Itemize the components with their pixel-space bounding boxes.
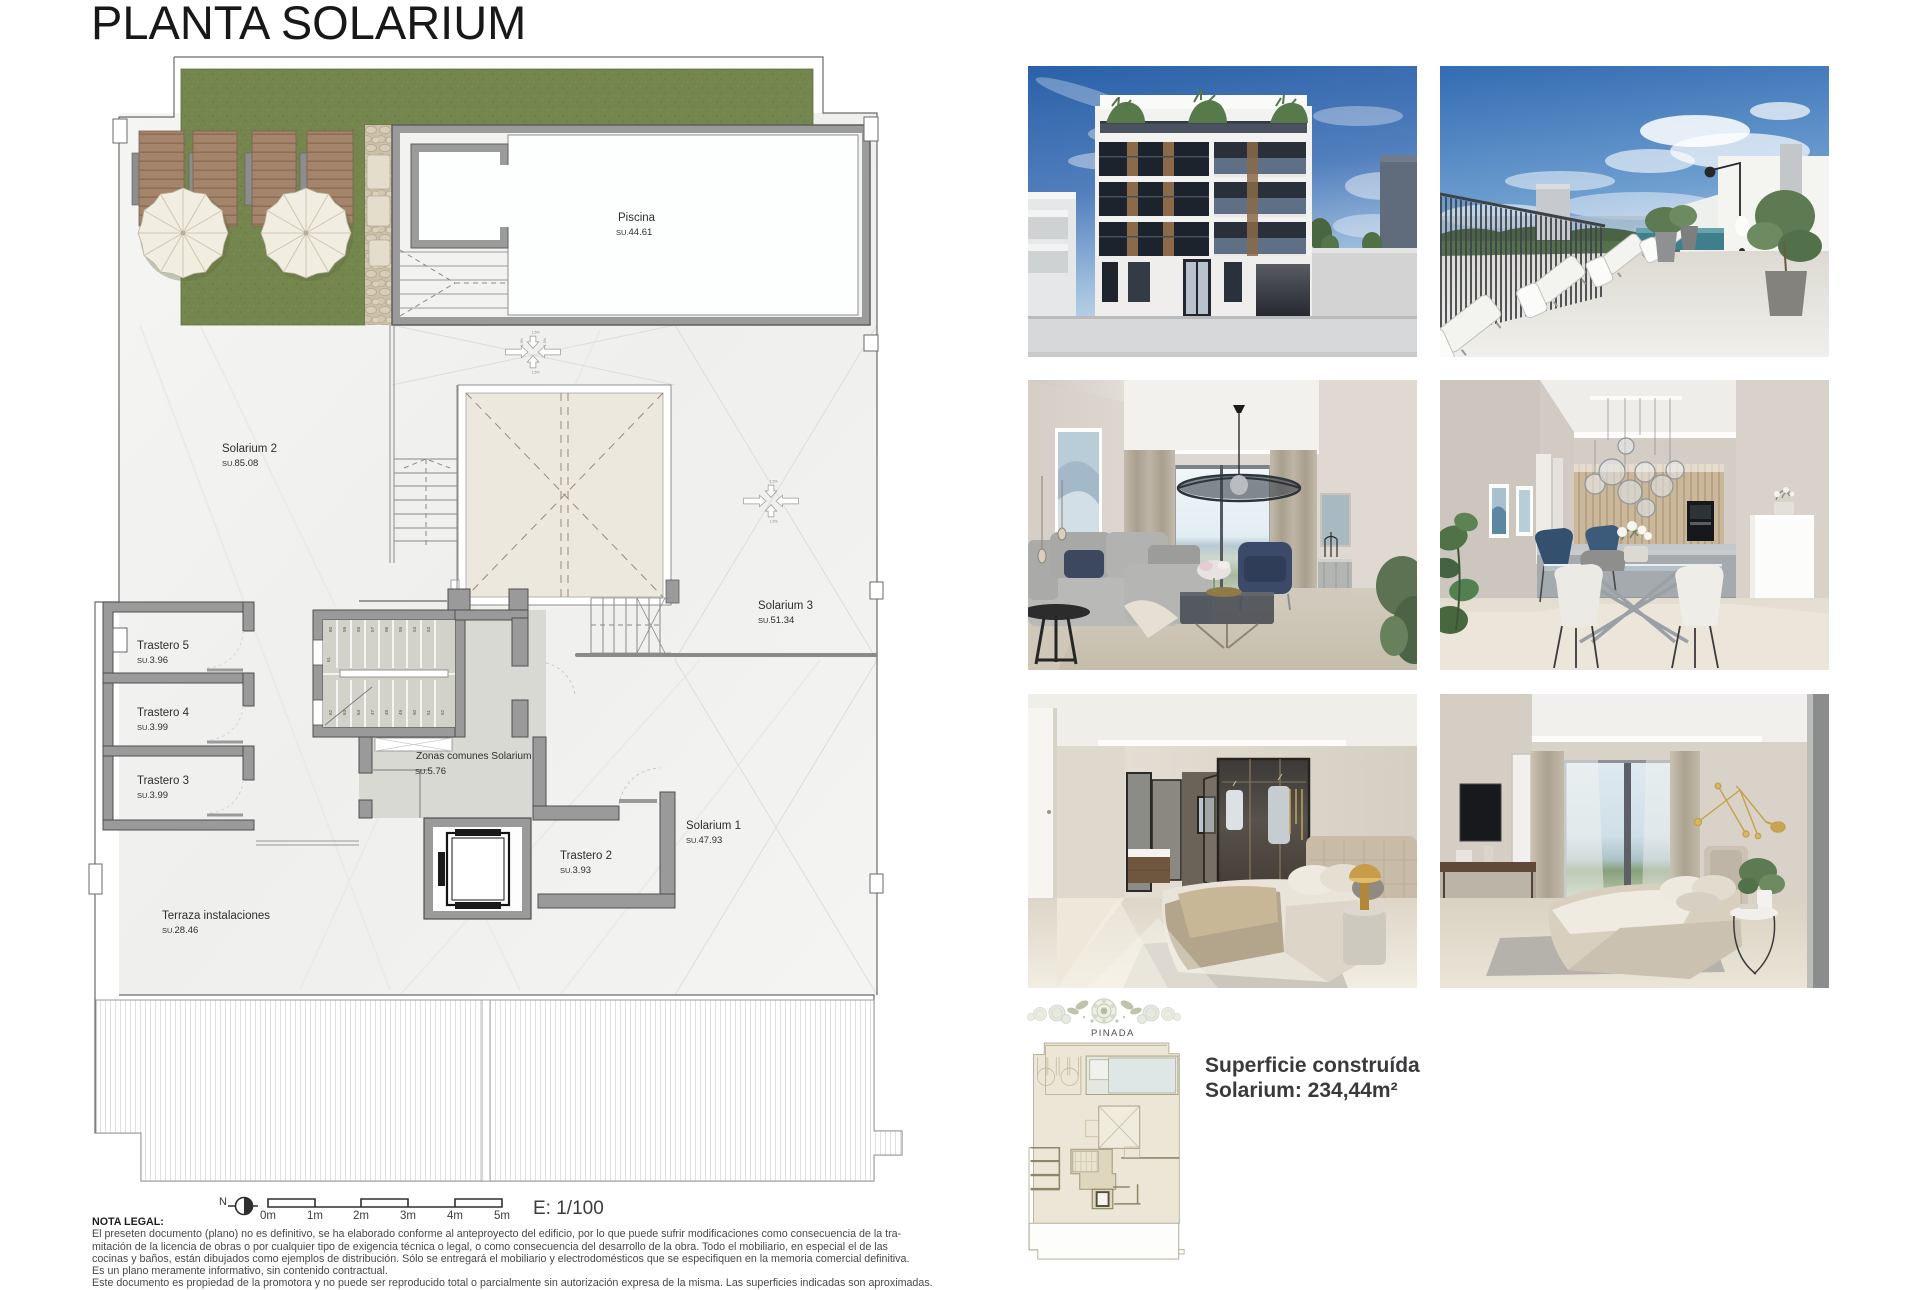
svg-text:62: 62 (328, 709, 333, 715)
svg-text:Solarium 3: Solarium 3 (758, 600, 813, 612)
svg-text:SU.28.46: SU.28.46 (162, 925, 198, 936)
svg-text:Piscina: Piscina (618, 212, 656, 224)
svg-text:59: 59 (342, 626, 347, 632)
svg-text:Trastero 5: Trastero 5 (137, 640, 189, 652)
svg-text:SU.44.61: SU.44.61 (616, 227, 652, 238)
svg-text:50: 50 (412, 709, 417, 715)
svg-text:56: 56 (384, 626, 389, 632)
svg-text:SU.85.08: SU.85.08 (222, 458, 258, 469)
svg-text:49: 49 (398, 709, 403, 715)
svg-text:57: 57 (370, 626, 375, 632)
svg-text:47: 47 (370, 709, 375, 715)
svg-text:63: 63 (342, 709, 347, 715)
svg-text:48: 48 (384, 709, 389, 715)
svg-text:58: 58 (356, 626, 361, 632)
svg-text:Trastero 3: Trastero 3 (137, 775, 189, 787)
svg-text:SU.47.93: SU.47.93 (686, 835, 722, 846)
svg-text:1.5%: 1.5% (532, 371, 541, 375)
svg-text:60: 60 (328, 626, 333, 632)
svg-text:61: 61 (326, 656, 331, 662)
svg-text:1.5%: 1.5% (543, 337, 547, 346)
svg-text:SU.5.76: SU.5.76 (415, 766, 446, 777)
svg-text:SU.3.93: SU.3.93 (560, 865, 591, 876)
svg-text:1.5%: 1.5% (770, 479, 779, 483)
svg-text:1.5%: 1.5% (770, 520, 779, 524)
svg-text:N: N (219, 1196, 227, 1208)
svg-text:52: 52 (440, 709, 445, 715)
svg-text:SU.3.96: SU.3.96 (137, 655, 168, 666)
svg-text:PINADA: PINADA (1091, 1028, 1135, 1039)
svg-text:1.5%: 1.5% (520, 337, 524, 346)
svg-text:Solarium 2: Solarium 2 (222, 443, 277, 455)
svg-text:Zonas comunes Solarium: Zonas comunes Solarium (416, 751, 532, 762)
svg-text:Terraza instalaciones: Terraza instalaciones (162, 910, 270, 922)
svg-text:Trastero 4: Trastero 4 (137, 707, 190, 719)
svg-text:55: 55 (398, 626, 403, 632)
svg-text:SU.3.99: SU.3.99 (137, 722, 168, 733)
svg-text:64: 64 (356, 709, 361, 715)
svg-text:Trastero 2: Trastero 2 (560, 850, 612, 862)
svg-text:SU.3.99: SU.3.99 (137, 790, 168, 801)
svg-text:54: 54 (412, 626, 417, 632)
svg-text:51: 51 (426, 709, 431, 715)
svg-text:Solarium 1: Solarium 1 (686, 820, 741, 832)
svg-text:1.5%: 1.5% (532, 330, 541, 334)
svg-text:53: 53 (426, 626, 431, 632)
svg-text:SU.51.34: SU.51.34 (758, 615, 794, 626)
